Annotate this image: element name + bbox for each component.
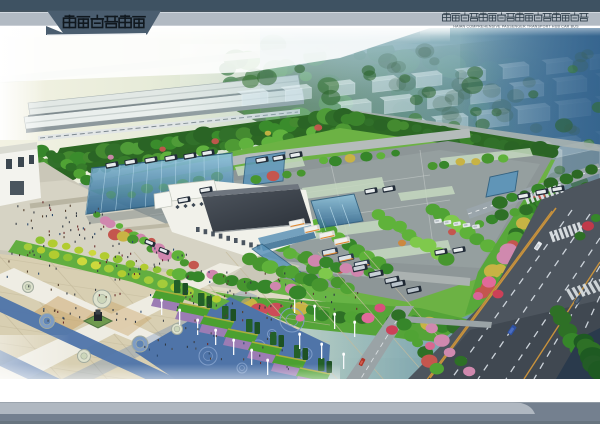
- svg-text:HAIAN COMPREHENSIVE PASSENGER: HAIAN COMPREHENSIVE PASSENGER TRANSPORT …: [453, 24, 579, 28]
